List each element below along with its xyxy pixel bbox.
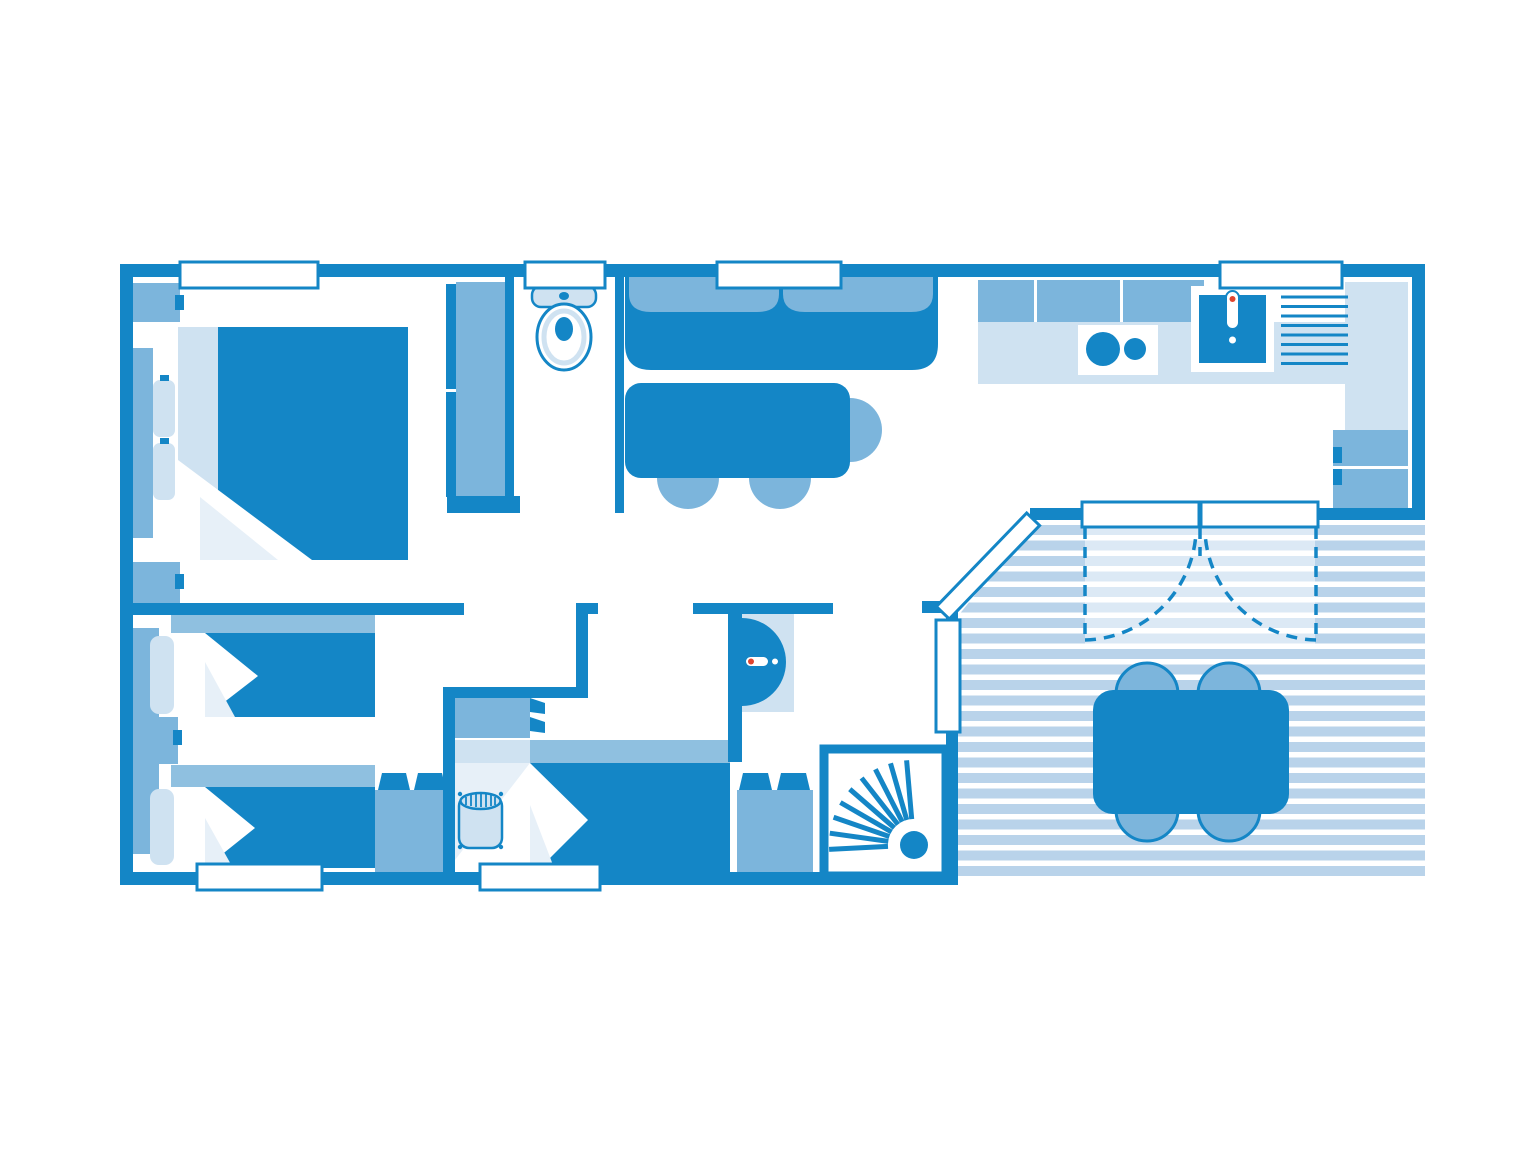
window-wc	[525, 262, 605, 288]
cabinet-lid	[739, 773, 772, 790]
wall-wc-right	[615, 277, 624, 513]
dining-chair-icon	[850, 398, 882, 462]
dresser-lid	[378, 773, 410, 790]
nightstand	[133, 283, 180, 322]
wall-left	[120, 264, 133, 885]
floorplan-drawing	[0, 0, 1536, 1152]
pillow-icon	[153, 443, 175, 500]
master-bedroom	[130, 282, 513, 605]
bed-sheet-band	[455, 740, 530, 763]
dresser-lid	[414, 773, 446, 790]
cabinet-flap	[530, 717, 545, 733]
toilet-button	[559, 292, 569, 300]
wc	[532, 286, 596, 370]
pillow-icon	[150, 636, 174, 714]
wardrobe	[456, 282, 513, 496]
kitchen	[978, 280, 1408, 512]
sink-drain	[1228, 336, 1237, 345]
pillow-icon	[150, 789, 174, 865]
wall-bed3-left	[443, 687, 455, 885]
burner-large-icon	[1086, 332, 1120, 366]
nightstand-handle	[175, 574, 184, 589]
cupboard-handle	[1333, 469, 1342, 485]
french-door-right	[1201, 502, 1318, 527]
dining-table	[625, 383, 850, 478]
shower-room	[737, 614, 946, 876]
wall-wc-left	[505, 277, 514, 513]
laundry-basket-icon	[458, 792, 503, 849]
nightstand-handle	[175, 295, 184, 310]
third-bedroom	[454, 695, 730, 878]
door-swing-zone	[1085, 527, 1315, 644]
nightstand-handle	[173, 730, 182, 745]
worktop-column	[1345, 282, 1408, 430]
dining-chair-icon	[749, 478, 811, 509]
burner-small-icon	[1124, 338, 1146, 360]
terrace-table	[1093, 690, 1289, 814]
pillow-icon	[153, 380, 175, 437]
wardrobe-door-rail	[446, 392, 456, 497]
window-shower-room	[936, 620, 960, 732]
cabinet-flap	[530, 698, 545, 714]
wall-wardrobe-base	[447, 496, 520, 513]
wall-right	[1412, 264, 1425, 520]
window-third-bedroom	[480, 864, 600, 890]
cabinet-separator	[1034, 280, 1037, 324]
wall-bath-top	[693, 603, 833, 614]
wall-corridor-left	[576, 603, 588, 698]
pillow-tassel	[160, 375, 169, 381]
pillow-tassel	[160, 438, 169, 444]
floorplan-page	[0, 0, 1536, 1152]
cupboard-handle	[1333, 447, 1342, 463]
bathroom-cabinet	[737, 790, 813, 874]
twin-bedroom	[133, 611, 448, 874]
upper-cabinets	[978, 280, 1204, 324]
wardrobe-door-rail	[446, 284, 456, 389]
french-door-left	[1082, 502, 1199, 527]
shower-tray	[824, 749, 946, 876]
wall-bed3-top	[445, 687, 588, 698]
dining-chair-icon	[657, 478, 719, 509]
window-twin-bedroom	[197, 864, 322, 890]
dresser	[375, 790, 448, 874]
basin-drain	[771, 658, 779, 666]
window-bedroom1	[180, 262, 318, 288]
window-living	[717, 262, 841, 288]
nightstand	[133, 562, 180, 605]
toilet-drain	[555, 317, 573, 341]
living-room	[625, 277, 938, 509]
terrace	[958, 522, 1425, 881]
shower-drain-icon	[900, 831, 928, 859]
faucet-hot-dot	[748, 659, 754, 665]
bed-sheet-band	[530, 740, 730, 763]
nightstand	[133, 717, 178, 764]
headboard-cabinet	[454, 695, 530, 738]
cabinet-separator	[1120, 280, 1123, 324]
bed-sheet-band	[171, 765, 375, 787]
wall-bath-left	[728, 603, 742, 762]
wall-bedroom-divider	[120, 603, 464, 615]
tall-cupboard	[1333, 430, 1408, 512]
window-kitchen	[1220, 262, 1342, 288]
faucet-hot-dot	[1230, 296, 1236, 302]
bed-headboard	[130, 348, 153, 538]
cupboard-split	[1333, 466, 1408, 469]
cabinet-lid	[777, 773, 810, 790]
